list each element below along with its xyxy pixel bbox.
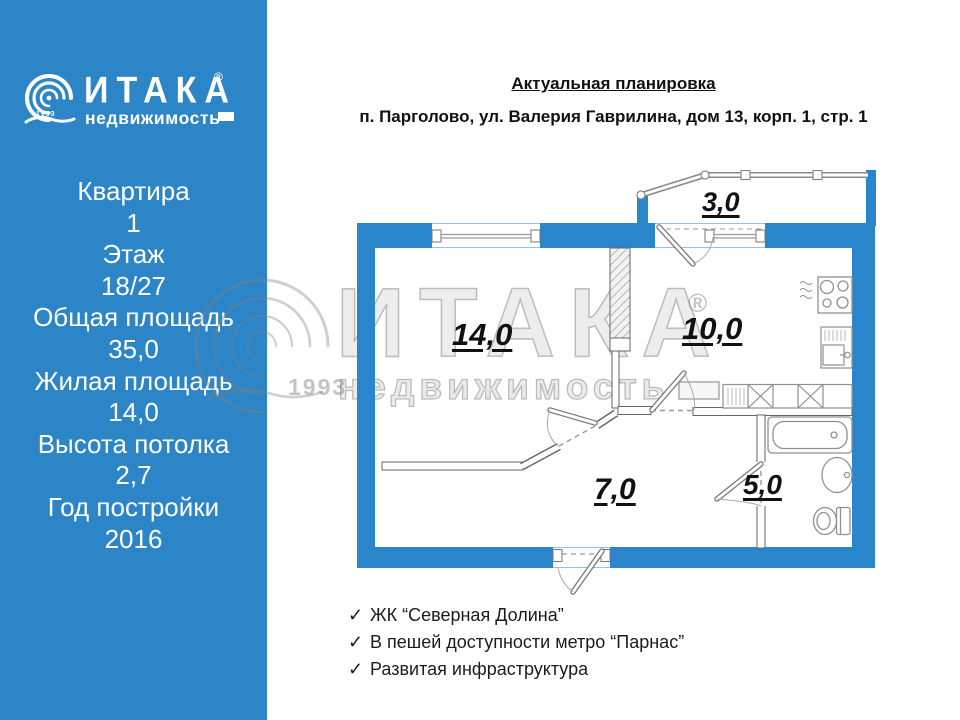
stat-line: 18/27	[0, 271, 267, 303]
wave-icon	[24, 72, 76, 130]
stat-line: 35,0	[0, 334, 267, 366]
hallway-area-label: 7,0	[594, 473, 636, 507]
header: Актуальная планировка п. Парголово, ул. …	[267, 74, 960, 127]
stat-line: Общая площадь	[0, 302, 267, 334]
room-kitchen-wall	[610, 248, 630, 408]
stat-line: Жилая площадь	[0, 366, 267, 398]
address-line: п. Парголово, ул. Валерия Гаврилина, дом…	[267, 107, 960, 127]
balcony-glazing	[637, 171, 868, 200]
stove-icon	[800, 277, 852, 313]
room-hall-wall	[382, 410, 616, 470]
stat-line: Этаж	[0, 239, 267, 271]
balcony-door-window	[655, 224, 765, 265]
page-title: Актуальная планировка	[267, 74, 960, 94]
logo-year: 1993	[36, 111, 56, 118]
logo-underline-bar	[218, 112, 234, 121]
balcony-area-label: 3,0	[702, 187, 740, 218]
itaka-logo: 1993 ИТАКА ® недвижимость	[22, 64, 247, 134]
room-window	[432, 224, 540, 248]
sidebar: 1993 ИТАКА ® недвижимость Квартира 1 Эта…	[0, 0, 267, 720]
floor-plan	[357, 170, 876, 602]
logo-subtitle: недвижимость	[85, 108, 221, 129]
stat-line: 1	[0, 208, 267, 240]
apartment-stats: Квартира 1 Этаж 18/27 Общая площадь 35,0…	[0, 176, 267, 555]
listing-flyer: 1993 ИТАКА ® недвижимость Квартира 1 Эта…	[0, 0, 960, 720]
feature-item: ✓ ЖК “Северная Долина”	[348, 602, 684, 629]
logo-registered-mark: ®	[214, 70, 223, 84]
kitchen-sink-icon	[821, 327, 852, 368]
feature-text: В пешей доступности метро “Парнас”	[370, 629, 684, 656]
floor-plan-drawing	[357, 170, 876, 602]
stat-line: Высота потолка	[0, 429, 267, 461]
feature-item: ✓ В пешей доступности метро “Парнас”	[348, 629, 684, 656]
stat-line: 2,7	[0, 460, 267, 492]
toilet-icon	[814, 508, 851, 535]
stat-line: Год постройки	[0, 492, 267, 524]
feature-text: Развитая инфраструктура	[370, 656, 588, 683]
stat-line: 2016	[0, 524, 267, 556]
check-icon: ✓	[348, 602, 370, 629]
features-list: ✓ ЖК “Северная Долина” ✓ В пешей доступн…	[348, 602, 684, 683]
watermark-year: 1993	[288, 374, 347, 401]
feature-item: ✓ Развитая инфраструктура	[348, 656, 684, 683]
bathroom-area-label: 5,0	[743, 469, 782, 501]
kitchen-counter	[723, 385, 852, 409]
stat-line: 14,0	[0, 397, 267, 429]
bathtub-icon	[768, 417, 852, 453]
stat-line: Квартира	[0, 176, 267, 208]
feature-text: ЖК “Северная Долина”	[370, 602, 564, 629]
check-icon: ✓	[348, 629, 370, 656]
bath-sink-icon	[822, 458, 852, 493]
entrance-door	[553, 548, 610, 593]
check-icon: ✓	[348, 656, 370, 683]
room-area-label: 14,0	[452, 317, 512, 353]
kitchen-area-label: 10,0	[682, 311, 742, 347]
